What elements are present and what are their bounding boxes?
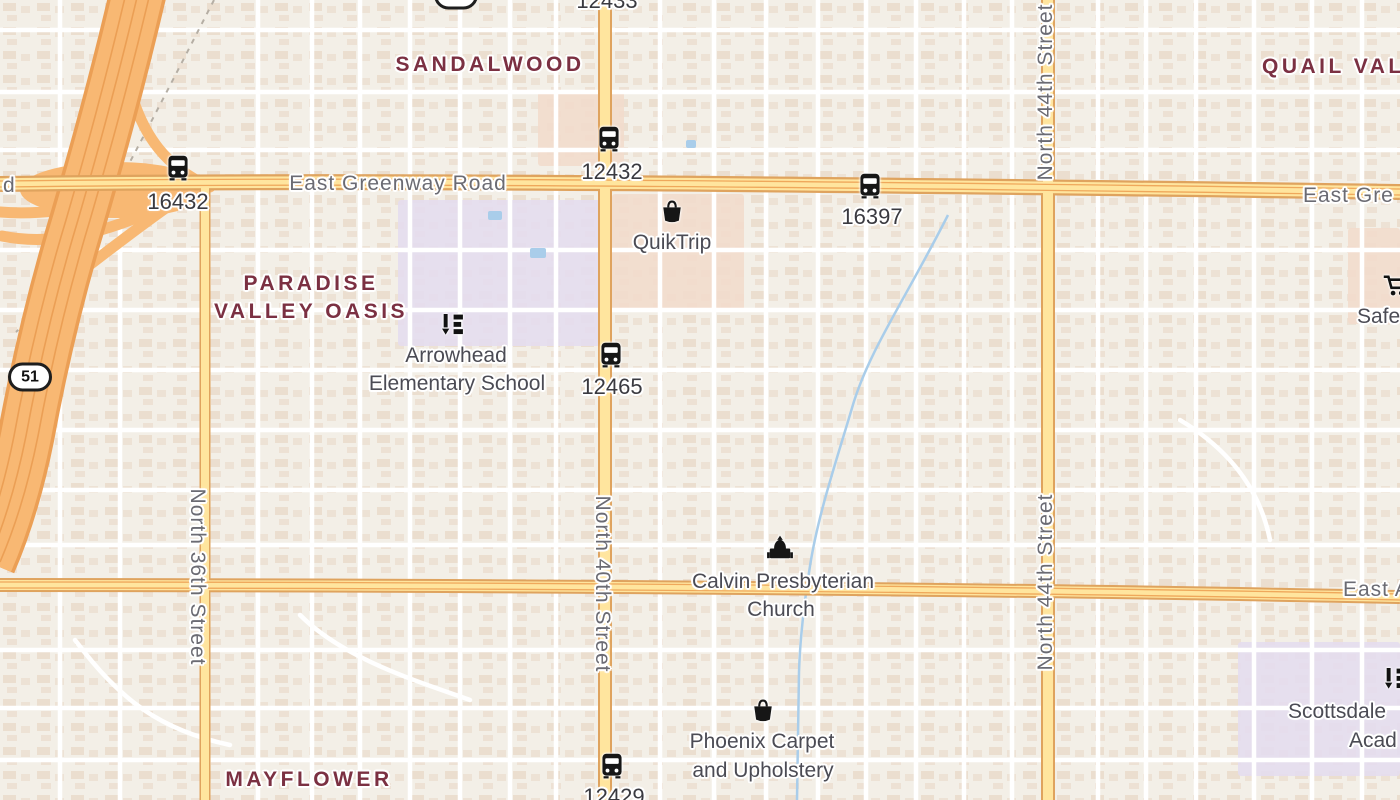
route-shield-51: 51: [8, 363, 52, 392]
bus-stop-id[interactable]: 16432: [147, 189, 208, 215]
bus-stop-id[interactable]: 16397: [841, 204, 902, 230]
road-label: North 36th Street: [185, 489, 209, 666]
bus-icon[interactable]: [596, 125, 623, 157]
neighborhood-label: QUAIL VAL: [1262, 53, 1400, 81]
poi-label-phoenix-carpet-and-upholstery[interactable]: and Upholstery: [692, 759, 833, 783]
school-icon[interactable]: [1382, 665, 1400, 698]
route-shield-51: 51: [434, 0, 478, 10]
shopping-cart-icon[interactable]: [1382, 272, 1400, 305]
church-icon[interactable]: [766, 535, 794, 568]
bus-icon[interactable]: [165, 154, 192, 186]
road-label: East A: [1343, 578, 1400, 602]
bus-icon[interactable]: [599, 752, 626, 784]
bus-icon[interactable]: [598, 341, 625, 373]
bus-stop-id[interactable]: 12465: [581, 374, 642, 400]
poi-label-safeway[interactable]: Safe: [1357, 305, 1400, 329]
poi-label-calvin-presbyterian-church[interactable]: Church: [747, 598, 815, 622]
road-label: North 44th Street: [1034, 494, 1058, 671]
poi-label-arrowhead-elementary-school[interactable]: Elementary School: [369, 372, 545, 396]
poi-label-phoenix-carpet-and-upholstery[interactable]: Phoenix Carpet: [690, 730, 835, 754]
road-label: North 44th Street: [1034, 4, 1058, 181]
school-icon[interactable]: [439, 311, 467, 344]
bus-icon[interactable]: [857, 172, 884, 204]
poi-label-calvin-presbyterian-church[interactable]: Calvin Presbyterian: [692, 570, 874, 594]
neighborhood-label: MAYFLOWER: [225, 766, 392, 794]
poi-label-scottsdale-academy[interactable]: Scottsdale: [1288, 700, 1386, 724]
poi-label-quiktrip[interactable]: QuikTrip: [633, 231, 712, 255]
shopping-bag-icon[interactable]: [658, 198, 686, 231]
road-label: d: [3, 174, 16, 198]
bus-stop-id[interactable]: 12432: [581, 159, 642, 185]
road-label: East Gre: [1303, 184, 1394, 208]
poi-label-arrowhead-elementary-school[interactable]: Arrowhead: [405, 344, 507, 368]
map-canvas[interactable]: SANDALWOODPARADISEVALLEY OASISQUAIL VALM…: [0, 0, 1400, 800]
road-label: North 40th Street: [590, 496, 614, 673]
neighborhood-label: PARADISEVALLEY OASIS: [214, 270, 408, 326]
road-label: East Greenway Road: [289, 172, 507, 196]
map-labels-layer: SANDALWOODPARADISEVALLEY OASISQUAIL VALM…: [0, 0, 1400, 800]
bus-stop-id[interactable]: 12429: [583, 784, 644, 800]
shopping-bag-icon[interactable]: [749, 697, 777, 730]
neighborhood-label: SANDALWOOD: [396, 51, 585, 79]
poi-label-scottsdale-academy[interactable]: Acad: [1349, 729, 1397, 753]
bus-stop-id[interactable]: 12433: [576, 0, 637, 14]
